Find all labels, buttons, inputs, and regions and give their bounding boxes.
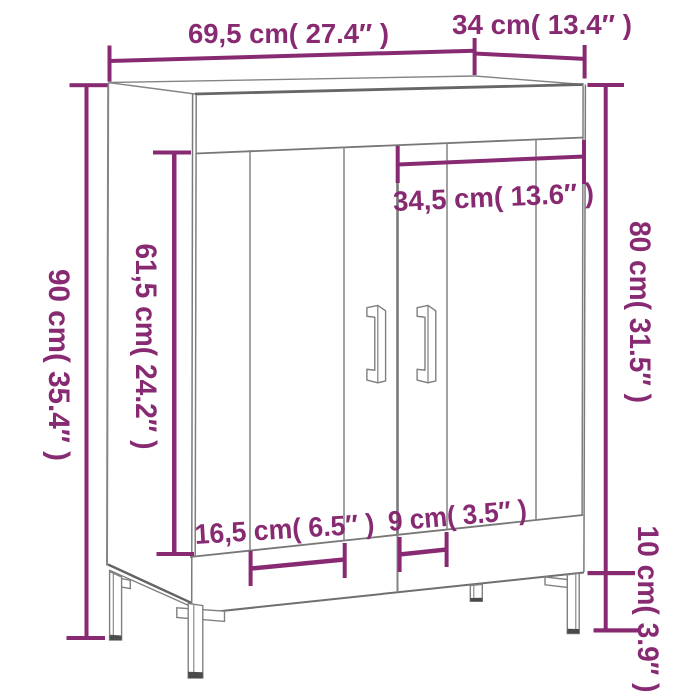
svg-text:61,5 cm( 24.2″ ): 61,5 cm( 24.2″ ) [129, 244, 162, 450]
svg-text:69,5 cm( 27.4″ ): 69,5 cm( 27.4″ ) [188, 18, 389, 49]
svg-text:10 cm( 3.9″ ): 10 cm( 3.9″ ) [631, 526, 664, 693]
svg-text:80 cm( 31.5″ ): 80 cm( 31.5″ ) [623, 221, 656, 403]
svg-text:34 cm( 13.4″ ): 34 cm( 13.4″ ) [452, 9, 632, 40]
svg-text:90 cm( 35.4″ ): 90 cm( 35.4″ ) [42, 269, 75, 461]
